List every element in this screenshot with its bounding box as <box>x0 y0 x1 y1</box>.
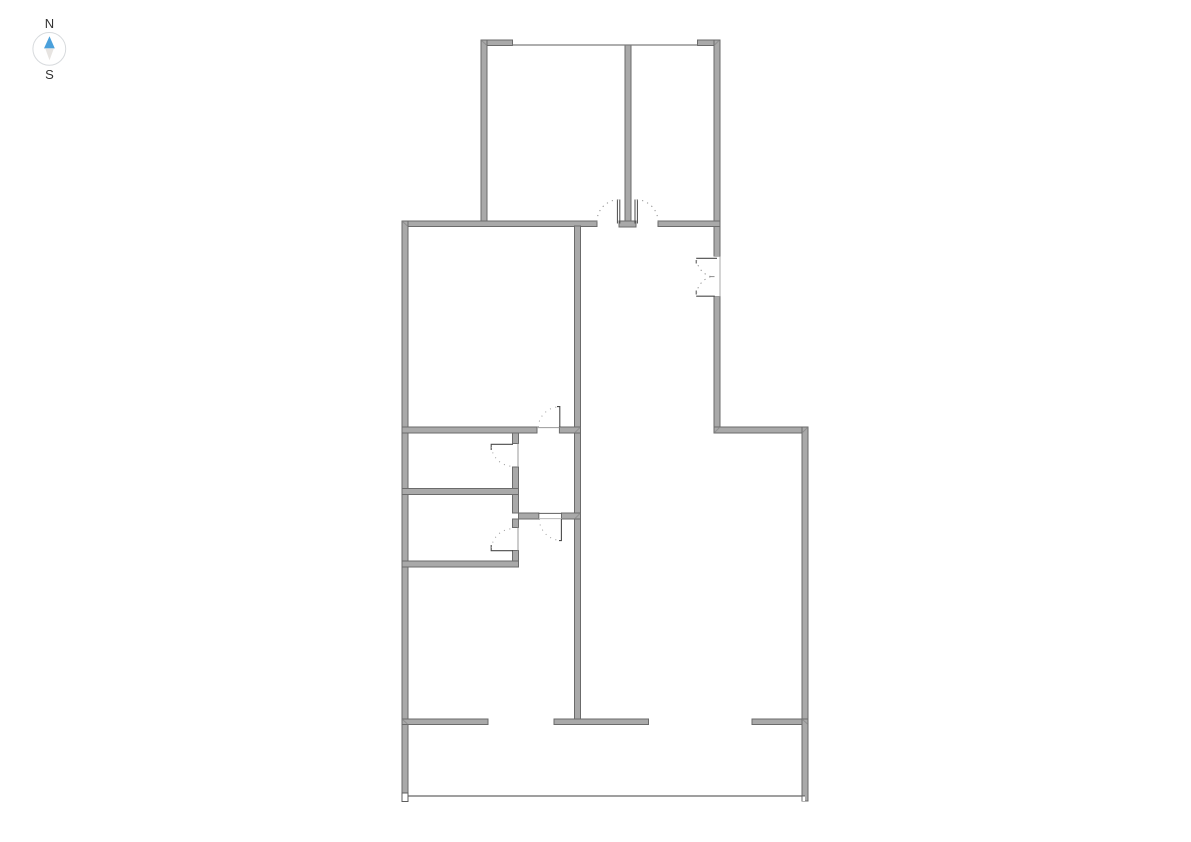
svg-text:S: S <box>45 67 54 82</box>
svg-text:N: N <box>45 16 54 31</box>
